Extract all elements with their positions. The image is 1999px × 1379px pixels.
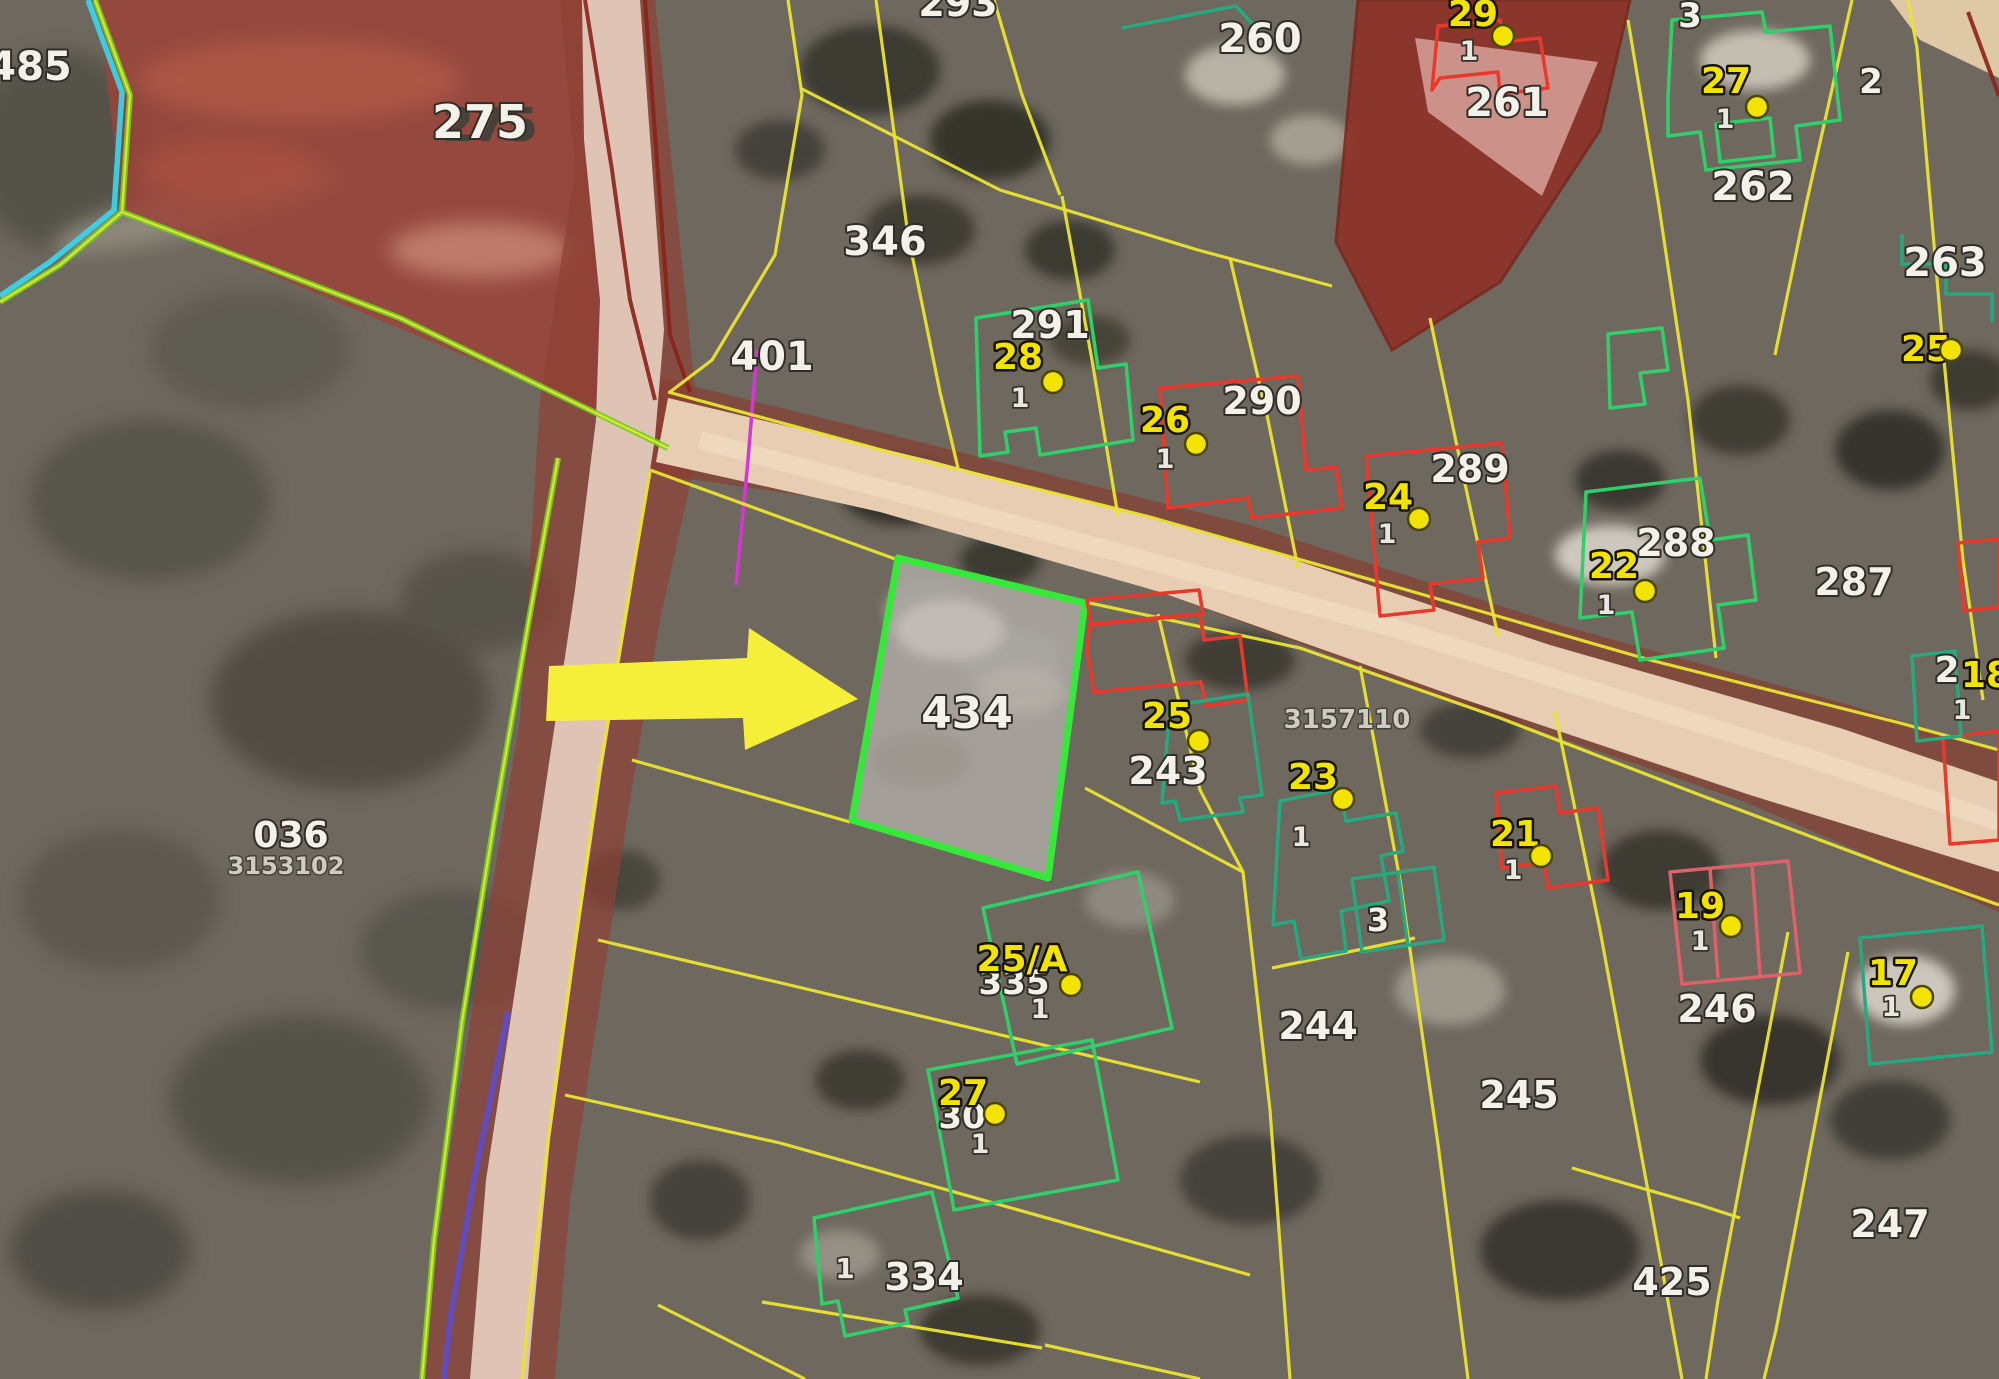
parcel-label-293: 293 <box>918 0 997 25</box>
parcel-label-261: 261 <box>1465 80 1549 126</box>
address-point-27[interactable] <box>1746 96 1768 118</box>
building-unit-label: 1 <box>1011 383 1030 414</box>
parcel-label-260: 260 <box>1218 16 1302 62</box>
parcel-label-263: 263 <box>1903 240 1987 286</box>
building-unit-label: 1 <box>1882 992 1901 1023</box>
address-point-25/A[interactable] <box>1060 974 1082 996</box>
address-number-23: 23 <box>1288 757 1338 798</box>
address-number-17: 17 <box>1868 953 1918 994</box>
building-unit-label: 1 <box>1031 994 1050 1025</box>
parcel-label-244: 244 <box>1278 1004 1357 1048</box>
building-unit-label: 1 <box>1292 822 1311 853</box>
building-unit-label: 1 <box>1953 695 1972 726</box>
building-unit-label: 1 <box>1691 926 1710 957</box>
parcel-label-245: 245 <box>1479 1073 1558 1117</box>
address-point-23[interactable] <box>1332 788 1354 810</box>
address-number-27: 27 <box>938 1073 988 1114</box>
building-unit-label: 1 <box>1378 519 1397 550</box>
address-point-27[interactable] <box>984 1103 1006 1125</box>
building-unit-label: 1 <box>1156 444 1175 475</box>
parcel-label-434: 434 <box>921 688 1013 739</box>
parcel-label-290: 290 <box>1222 379 1301 423</box>
address-number-24: 24 <box>1363 477 1413 518</box>
parcel-code-3153102: 3153102 <box>228 852 345 880</box>
parcel-label-243: 243 <box>1128 749 1207 793</box>
address-point-22[interactable] <box>1634 580 1656 602</box>
building-unit-label: 1 <box>1716 104 1735 135</box>
address-point-28[interactable] <box>1042 371 1064 393</box>
parcel-label-485: 485 <box>0 44 72 90</box>
map-canvas[interactable]: 4852752752933464012602612622632912902892… <box>0 0 1999 1379</box>
address-number-19: 19 <box>1675 886 1725 927</box>
parcel-label-288: 288 <box>1636 521 1715 565</box>
address-number-25/A: 25/A <box>976 939 1067 980</box>
parcel-label-289: 289 <box>1430 447 1509 491</box>
parcel-label-2: 2 <box>1934 650 1959 691</box>
parcel-label-3: 3 <box>1367 901 1389 939</box>
parcel-label-247: 247 <box>1850 1202 1929 1246</box>
address-number-22: 22 <box>1589 546 1639 587</box>
address-number-27: 27 <box>1701 61 1751 102</box>
address-point-25[interactable] <box>1188 730 1210 752</box>
address-point-25[interactable] <box>1940 339 1962 361</box>
parcel-label-3: 3 <box>1678 0 1702 36</box>
address-number-18: 18 <box>1961 655 1999 696</box>
building-unit-label: 1 <box>1504 855 1523 886</box>
parcel-label-275: 275 <box>432 95 528 149</box>
parcel-label-425: 425 <box>1632 1260 1711 1304</box>
address-number-26: 26 <box>1140 400 1190 441</box>
parcel-label-346: 346 <box>843 219 927 265</box>
address-number-28: 28 <box>993 337 1043 378</box>
parcel-label-262: 262 <box>1711 164 1795 210</box>
building-unit-label: 1 <box>1597 590 1616 621</box>
address-point-19[interactable] <box>1720 915 1742 937</box>
address-number-29: 29 <box>1448 0 1498 35</box>
address-point-17[interactable] <box>1911 986 1933 1008</box>
parcel-label-036: 036 <box>253 815 328 856</box>
building-unit-label: 1 <box>971 1129 990 1160</box>
parcel-label-287: 287 <box>1814 560 1893 604</box>
building-unit-label: 1 <box>1460 36 1479 67</box>
parcel-label-334: 334 <box>884 1255 963 1299</box>
address-point-24[interactable] <box>1408 508 1430 530</box>
parcel-label-2: 2 <box>1859 62 1883 102</box>
parcel-code-3157110: 3157110 <box>1284 705 1411 735</box>
parcel-label-401: 401 <box>730 334 814 380</box>
parcel-label-246: 246 <box>1677 987 1756 1031</box>
address-point-21[interactable] <box>1530 845 1552 867</box>
address-point-26[interactable] <box>1185 433 1207 455</box>
address-point-29[interactable] <box>1492 25 1514 47</box>
address-number-25: 25 <box>1142 696 1192 737</box>
building-unit-label: 1 <box>835 1252 854 1285</box>
